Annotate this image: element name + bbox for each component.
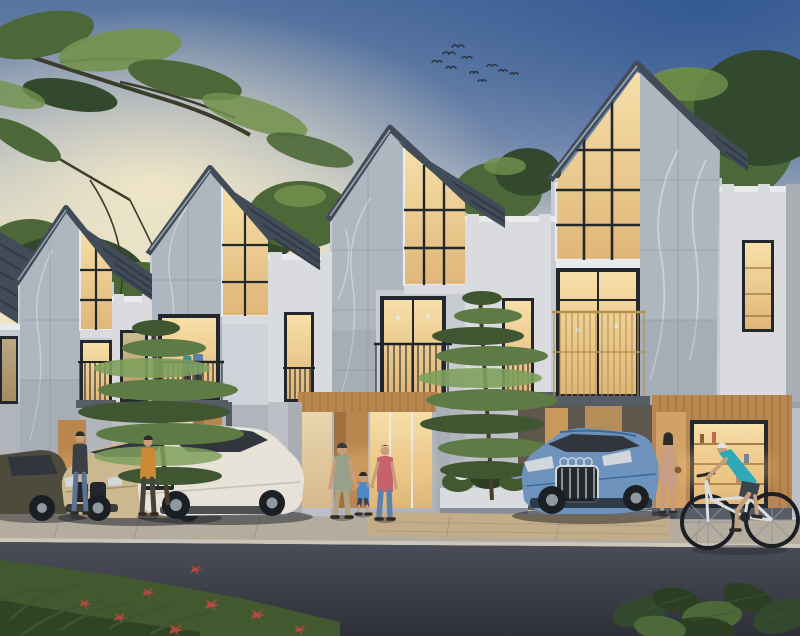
townhouse-dusk-rendering bbox=[0, 0, 800, 636]
dark-olive-sedan bbox=[0, 450, 72, 521]
entry-glass bbox=[302, 412, 332, 508]
bird-icon bbox=[478, 80, 486, 81]
bird-icon bbox=[499, 70, 507, 71]
side-window bbox=[283, 312, 315, 402]
handbag bbox=[675, 467, 682, 474]
second-floor-window bbox=[556, 260, 640, 398]
p0-window bbox=[0, 336, 18, 404]
bird-icon bbox=[510, 73, 518, 74]
side-shelf-window bbox=[742, 240, 774, 332]
